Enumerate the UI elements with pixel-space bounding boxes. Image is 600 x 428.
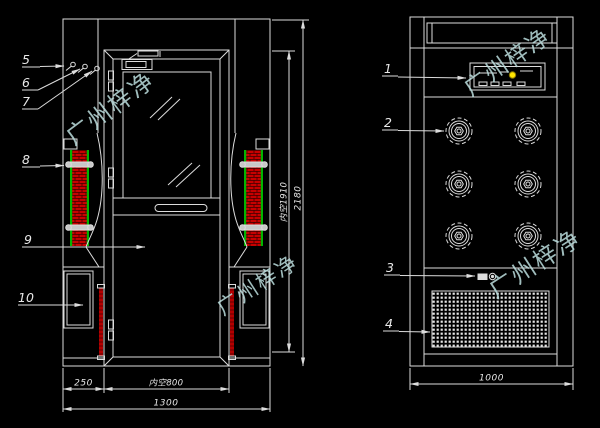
door-seal-strips (98, 285, 236, 360)
lower-cabinet-left (64, 271, 93, 328)
air-shower-drawing: 2180 内空1910 250 内空800 1300 5 6 7 8 9 10 (0, 0, 600, 428)
callout-10: 10 (18, 290, 34, 305)
leader-6 (38, 69, 80, 90)
watermark-front-glass: 广州梓净 (61, 66, 161, 151)
callout-7: 7 (22, 94, 30, 109)
callout-3: 3 (386, 260, 394, 275)
air-nozzle (446, 223, 472, 249)
dim-overall-depth: 1000 (479, 374, 504, 384)
dim-overall-width: 1300 (154, 399, 179, 409)
air-nozzle (515, 171, 541, 197)
callout-5: 5 (22, 52, 30, 67)
leader-4 (399, 332, 430, 333)
filter-bracket-right (256, 139, 269, 149)
leader-8 (40, 166, 64, 167)
callout-2: 2 (384, 115, 392, 130)
dim-inner-height: 内空1910 (279, 182, 290, 222)
door-handle-slot (155, 205, 207, 212)
callout-6: 6 (22, 75, 30, 90)
air-nozzle (515, 118, 541, 144)
door-closer (122, 51, 160, 70)
leader-1 (398, 77, 466, 78)
air-nozzles (446, 118, 541, 249)
return-air-grille (432, 291, 549, 347)
callout-9: 9 (24, 232, 32, 247)
dim-side-width: 250 (74, 379, 93, 389)
callout-4: 4 (385, 316, 393, 331)
leader-5 (40, 66, 64, 67)
filter-bolts (66, 162, 268, 231)
leader-2 (398, 131, 444, 132)
air-nozzle (446, 118, 472, 144)
air-nozzle (446, 171, 472, 197)
dim-overall-height: 2180 (294, 186, 304, 211)
door-handle-band (113, 198, 220, 215)
cad-drawing-canvas: 2180 内空1910 250 内空800 1300 5 6 7 8 9 10 (0, 0, 600, 428)
glass-reflection-marks (150, 97, 200, 187)
fastener-screws (66, 62, 99, 74)
duct-transition-lines (63, 247, 270, 267)
leader-3 (400, 276, 475, 277)
callout-1: 1 (384, 61, 392, 76)
callout-8: 8 (22, 152, 30, 167)
dim-inner-width: 内空800 (149, 378, 184, 389)
